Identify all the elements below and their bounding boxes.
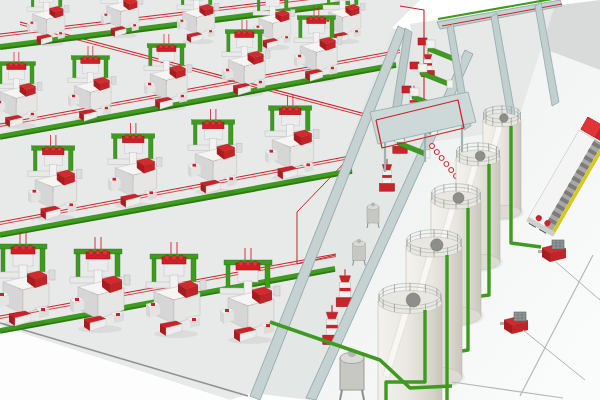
coupling (444, 162, 449, 167)
fill-valve (406, 293, 420, 307)
fill-valve (431, 239, 443, 251)
fill-valve (475, 151, 485, 161)
fill-valve (453, 193, 464, 204)
coupling (430, 144, 435, 149)
silo (375, 283, 445, 400)
fill-valve (500, 114, 508, 122)
coupling (449, 168, 454, 173)
coupling (434, 150, 439, 155)
scene-svg (0, 0, 600, 400)
coupling (439, 156, 444, 161)
plant-3d-viewport[interactable] (0, 0, 600, 400)
